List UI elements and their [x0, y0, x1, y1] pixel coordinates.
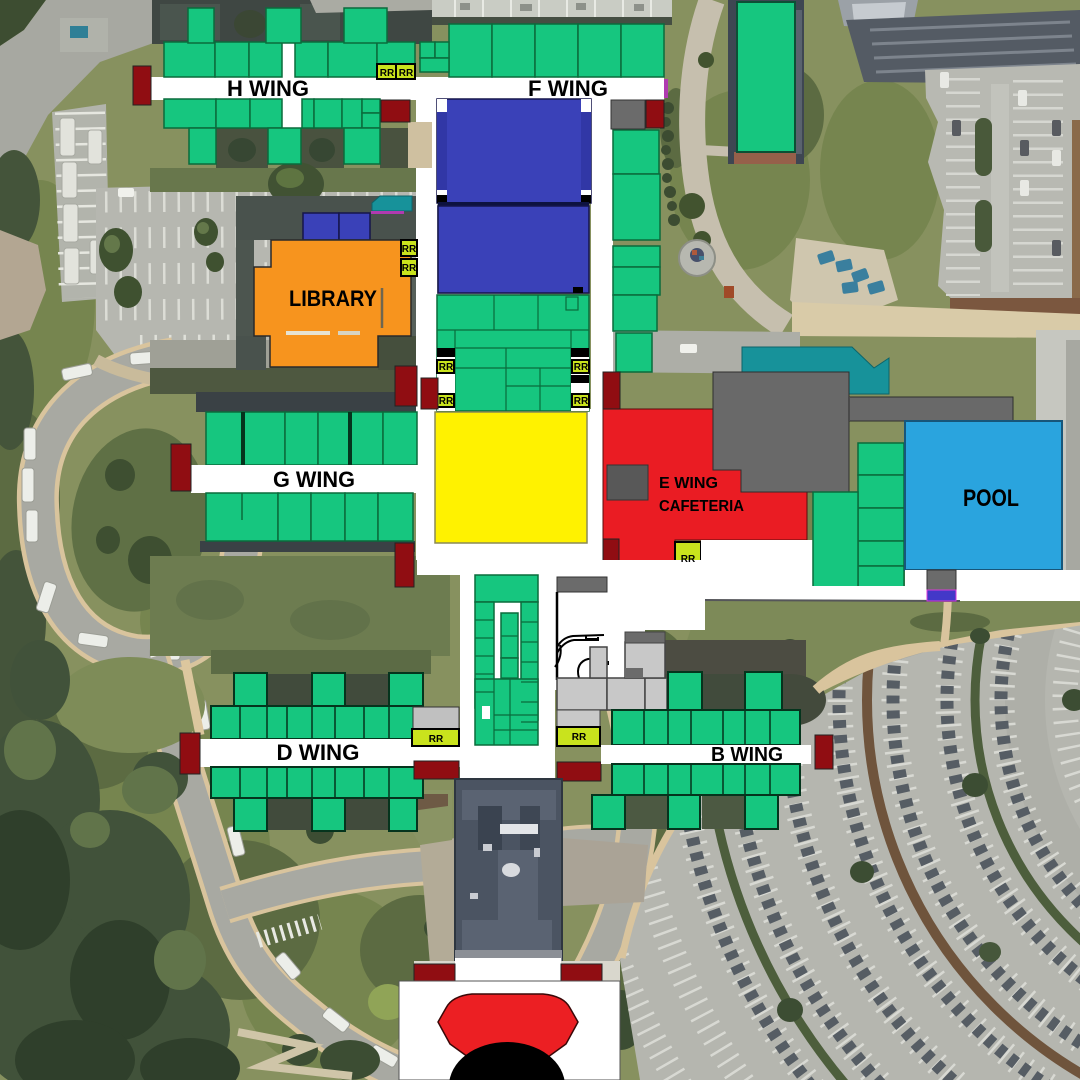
svg-text:F WING: F WING — [528, 76, 608, 101]
svg-text:RR: RR — [402, 244, 417, 255]
svg-text:RR: RR — [399, 68, 414, 79]
svg-text:RR: RR — [429, 734, 444, 745]
svg-text:POOL: POOL — [963, 485, 1019, 512]
svg-text:B WING: B WING — [711, 744, 783, 766]
svg-text:H WING: H WING — [227, 76, 309, 101]
svg-text:G WING: G WING — [273, 467, 355, 492]
svg-text:RR: RR — [574, 396, 589, 407]
svg-text:RR: RR — [439, 396, 454, 407]
svg-text:RR: RR — [681, 554, 696, 565]
svg-text:RR: RR — [402, 263, 417, 274]
svg-text:LIBRARY: LIBRARY — [289, 286, 377, 311]
svg-text:D WING: D WING — [277, 740, 360, 765]
svg-text:RR: RR — [574, 362, 589, 373]
svg-text:CAFETERIA: CAFETERIA — [659, 498, 744, 515]
svg-text:RR: RR — [572, 732, 587, 743]
svg-text:RR: RR — [439, 362, 454, 373]
svg-text:RR: RR — [380, 68, 395, 79]
svg-text:E WING: E WING — [659, 475, 718, 492]
